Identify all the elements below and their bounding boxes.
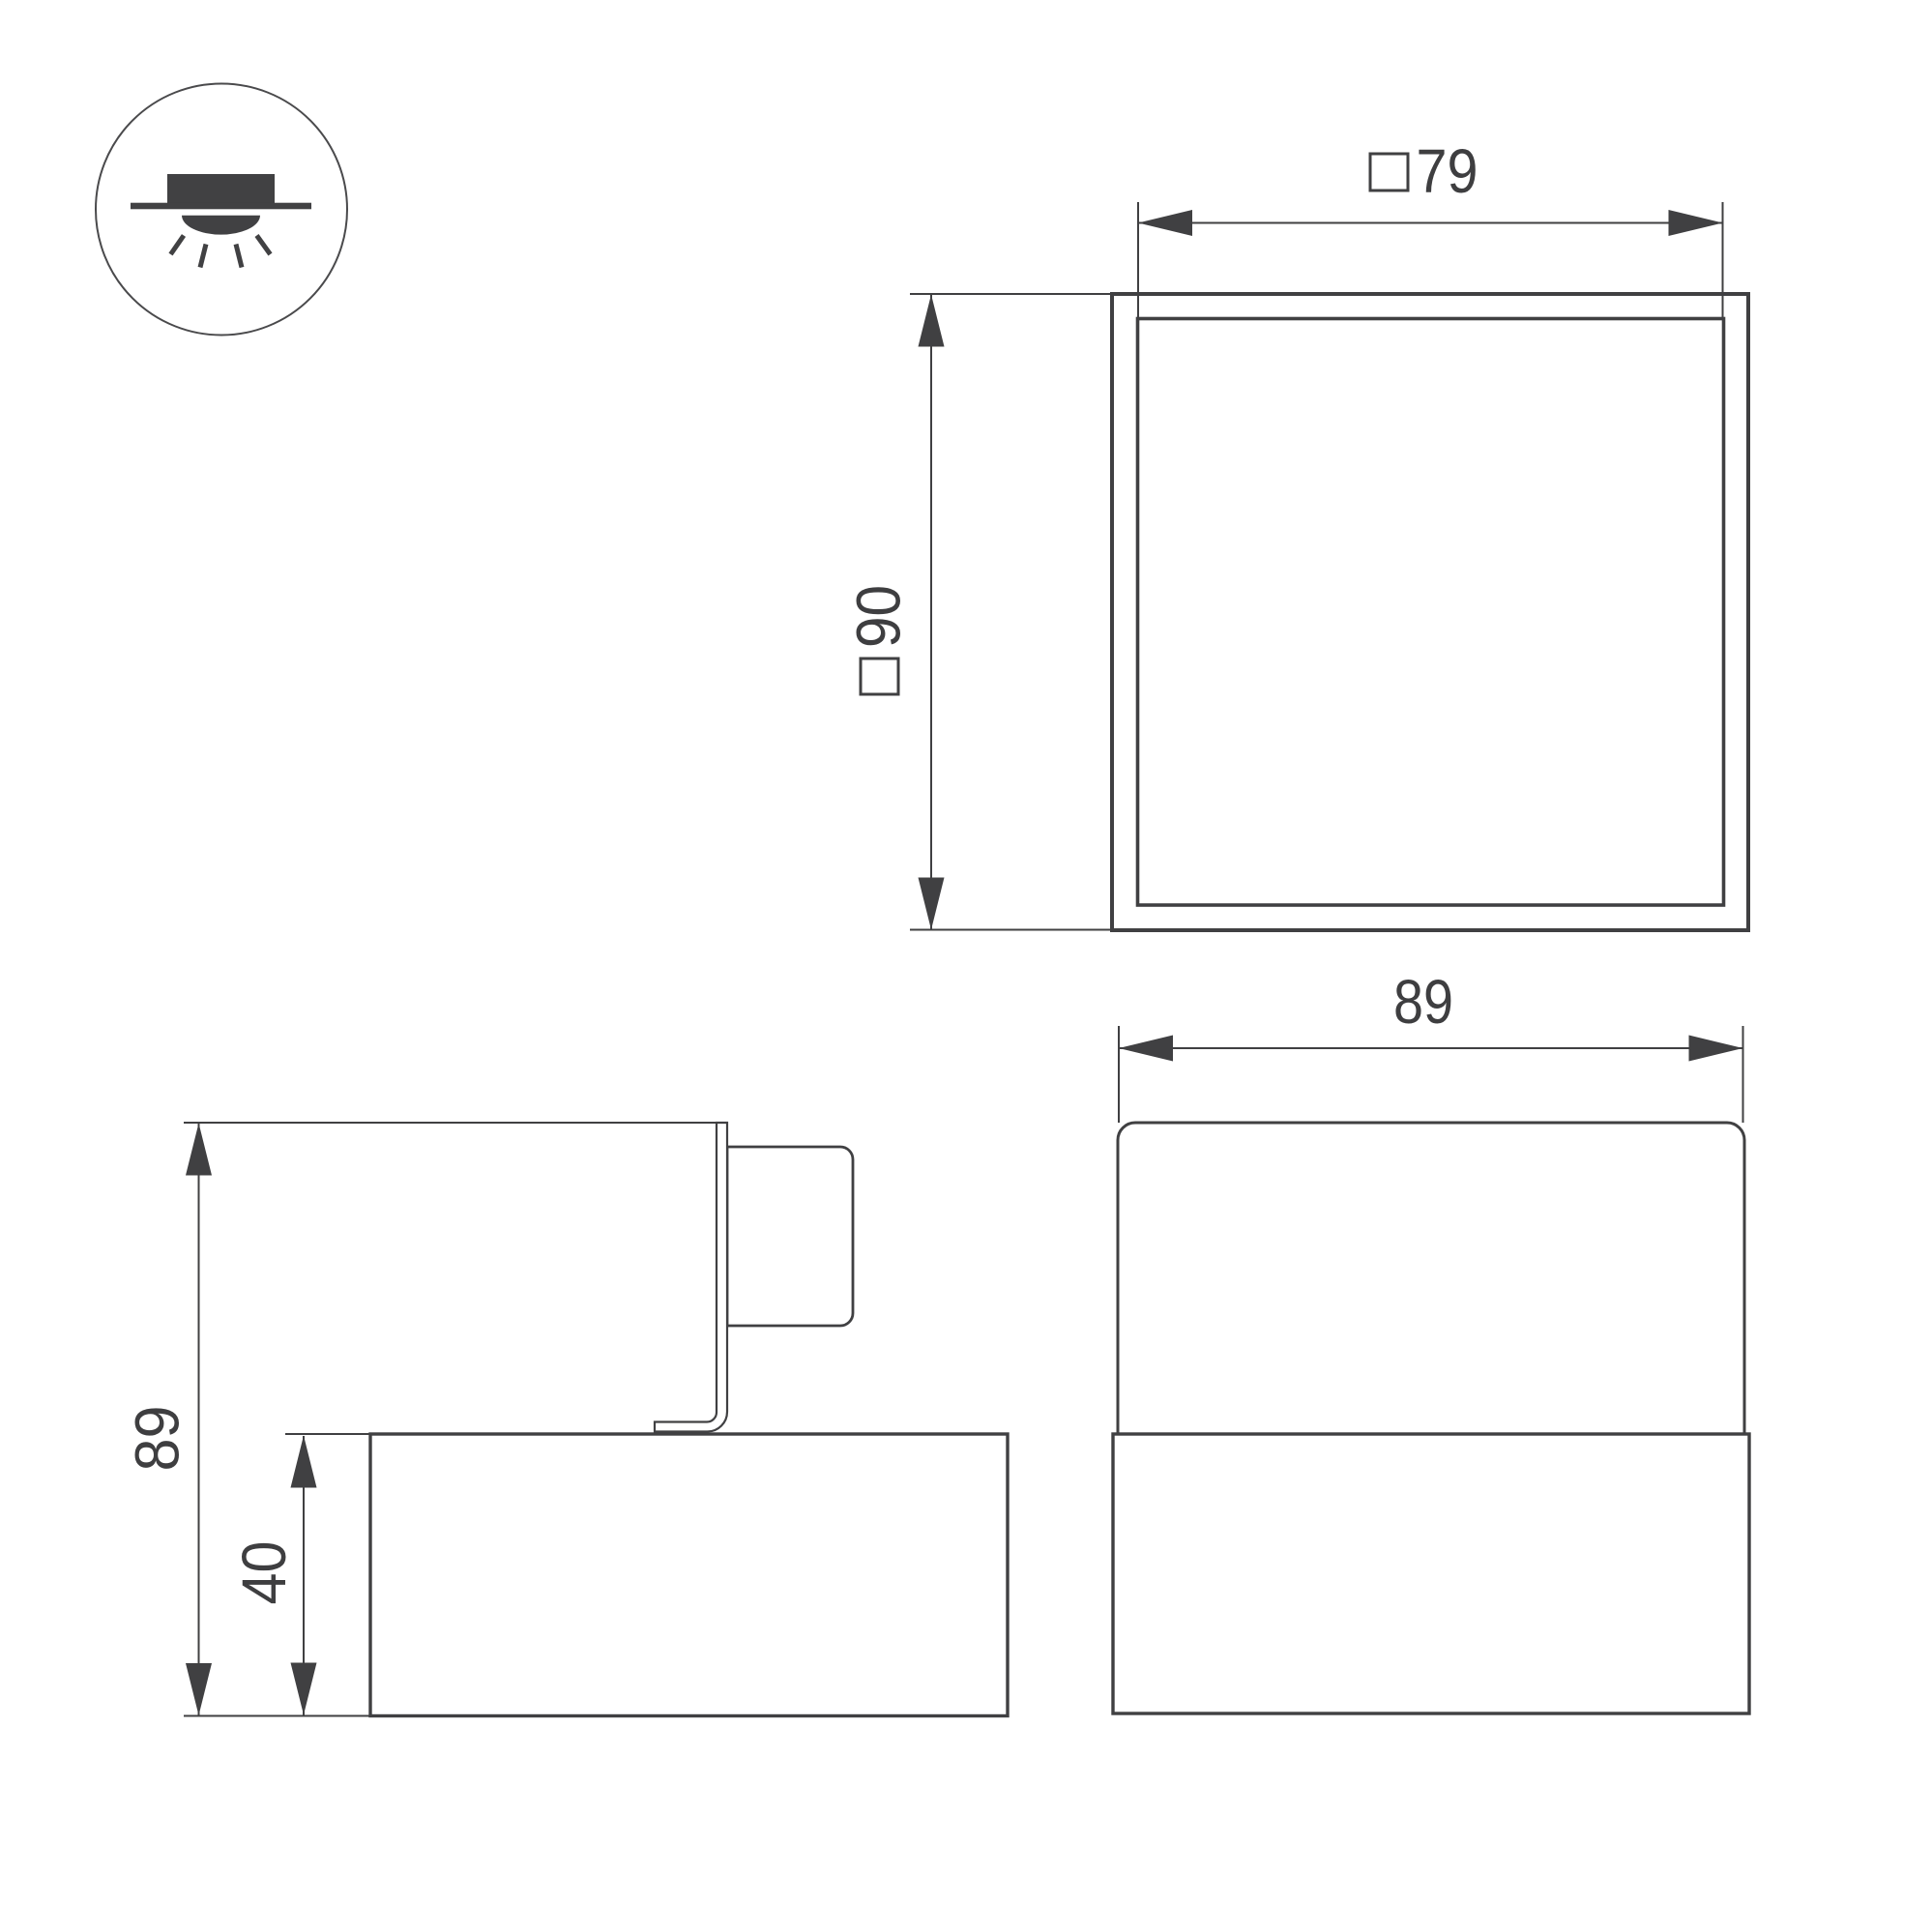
- svg-text:90: 90: [844, 585, 914, 648]
- svg-text:79: 79: [1417, 136, 1478, 206]
- svg-text:89: 89: [1393, 967, 1453, 1037]
- svg-text:89: 89: [123, 1406, 192, 1472]
- svg-text:40: 40: [229, 1541, 299, 1605]
